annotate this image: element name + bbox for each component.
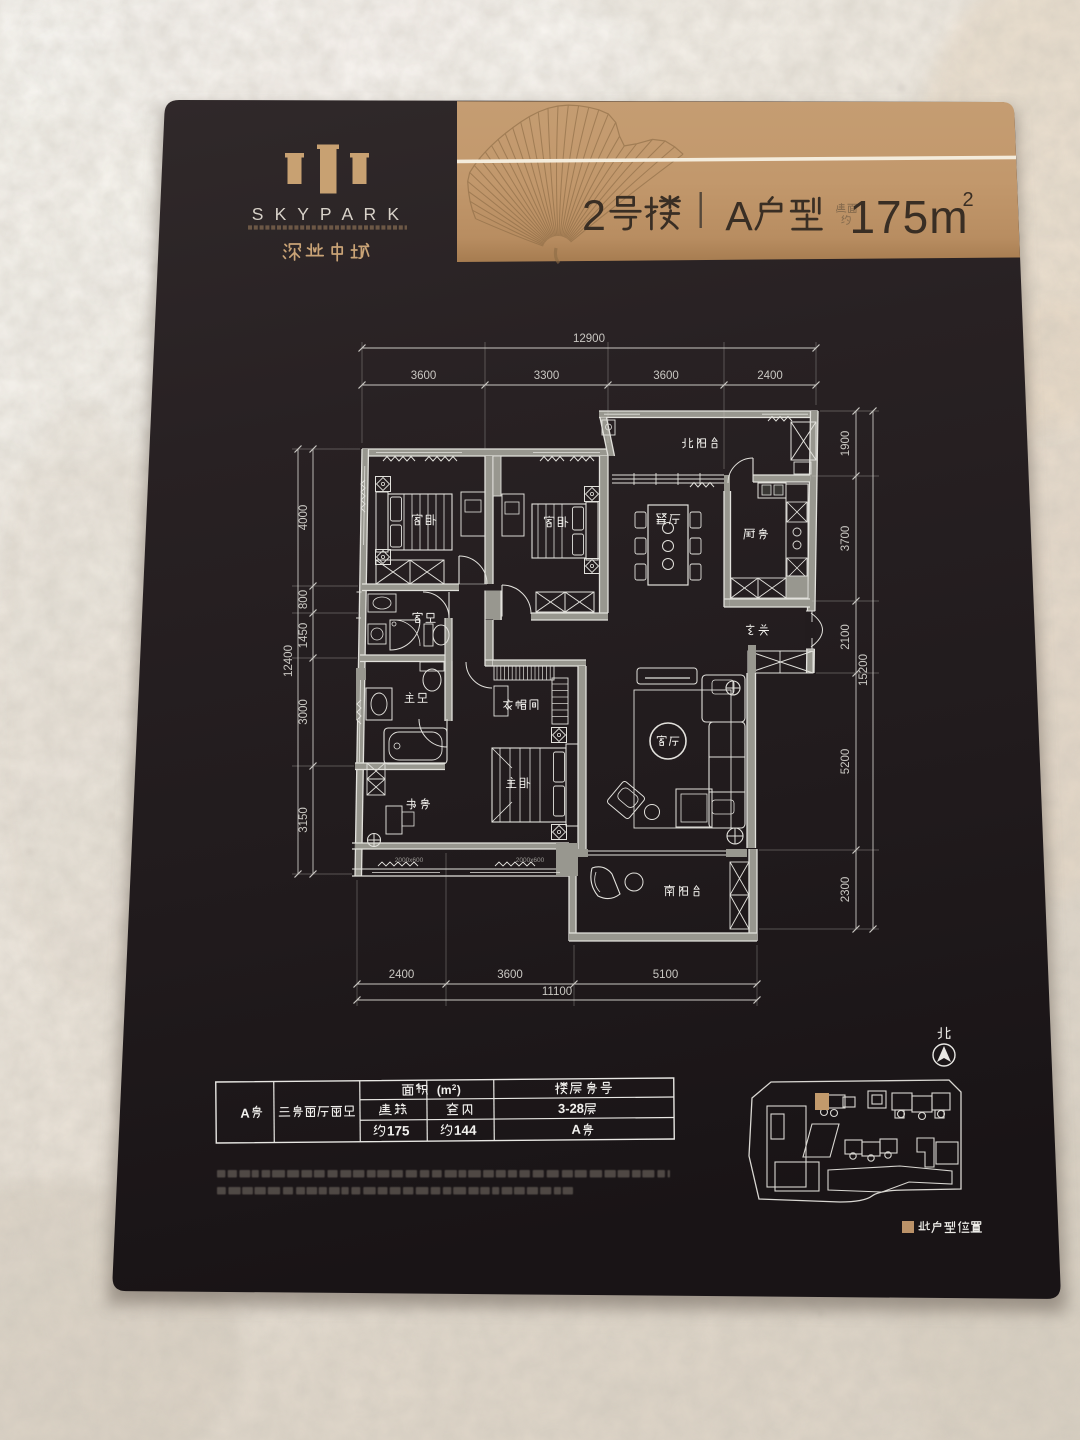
svg-text:1900: 1900: [840, 431, 852, 457]
svg-text:2: 2: [962, 189, 973, 211]
svg-text:2: 2: [582, 192, 606, 240]
svg-text:3700: 3700: [840, 526, 852, 552]
svg-text:2400: 2400: [389, 969, 415, 981]
svg-text:A: A: [725, 193, 753, 239]
svg-text:175: 175: [387, 1123, 410, 1138]
svg-text:5100: 5100: [653, 969, 679, 981]
svg-text:2300: 2300: [840, 877, 852, 903]
svg-text:(m: (m: [437, 1083, 452, 1097]
svg-text:): ): [457, 1083, 461, 1097]
svg-text:3150: 3150: [298, 807, 310, 833]
svg-text:12400: 12400: [283, 645, 295, 677]
svg-text:12900: 12900: [573, 333, 605, 345]
svg-text:800: 800: [298, 590, 310, 609]
svg-text:3600: 3600: [411, 370, 437, 382]
svg-text:11100: 11100: [542, 986, 572, 998]
svg-text:3600: 3600: [497, 969, 523, 981]
svg-text:2000x600: 2000x600: [395, 857, 424, 864]
svg-text:2400: 2400: [757, 370, 783, 382]
svg-text:2100: 2100: [840, 624, 852, 650]
svg-text:2000x600: 2000x600: [516, 857, 545, 864]
svg-text:5200: 5200: [840, 749, 852, 775]
svg-text:3-28: 3-28: [558, 1101, 584, 1116]
svg-text:3300: 3300: [534, 370, 560, 382]
svg-text:4000: 4000: [298, 505, 310, 531]
svg-text:1450: 1450: [298, 623, 310, 649]
svg-text:3600: 3600: [653, 370, 679, 382]
svg-text:A: A: [571, 1122, 581, 1137]
svg-text:144: 144: [454, 1123, 477, 1138]
svg-text:15200: 15200: [858, 654, 870, 686]
svg-text:A: A: [240, 1106, 250, 1121]
svg-text:3000: 3000: [298, 699, 310, 725]
svg-text:S K Y P A R K: S K Y P A R K: [252, 204, 403, 224]
svg-text:175m: 175m: [849, 191, 968, 243]
